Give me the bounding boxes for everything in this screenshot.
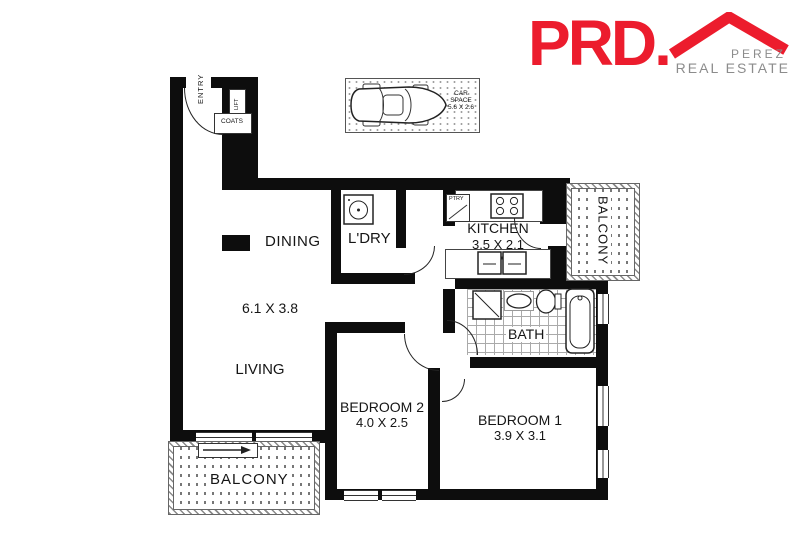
sink-icon (477, 251, 527, 275)
prd-logo-text: PRD. (528, 6, 669, 80)
lift-label: LIFT (234, 99, 240, 110)
floorplan-canvas: PRD. PEREZ REAL ESTATE CAR SPACE 5.6 X 2… (0, 0, 800, 534)
bedroom2-dimensions: 4.0 X 2.5 (332, 416, 432, 430)
washing-machine-icon (343, 194, 374, 225)
bedroom2-door-arc (404, 334, 439, 371)
wall-laundry-bottom (331, 273, 415, 284)
cooktop-icon (490, 193, 524, 219)
pantry-label: PTRY (449, 196, 464, 202)
dining-label: DINING (265, 234, 321, 251)
sliding-door-arrow-icon (199, 444, 255, 456)
living-dimensions: 6.1 X 3.8 (200, 301, 340, 316)
dining-wall-pier (222, 235, 250, 251)
bedroom1-door-arc (442, 379, 465, 402)
laundry-door-arc (404, 246, 435, 275)
bedroom1-dimensions: 3.9 X 3.1 (450, 429, 590, 443)
vanity-basin-icon (504, 291, 534, 311)
window-bedroom2-bottom-1 (344, 490, 378, 501)
balcony-bottom-label: BALCONY (208, 472, 291, 489)
wall-entry-top-right (211, 77, 258, 88)
wall-bedroom2-top (325, 322, 405, 333)
wall-bedroom-divider (428, 368, 440, 500)
bath-label: BATH (506, 327, 546, 342)
window-bedroom1-right-3 (597, 450, 609, 478)
balcony-right-area: BALCONY (566, 183, 640, 281)
car-space-area: CAR SPACE 5.6 X 2.6 (345, 78, 480, 133)
bathtub-icon (565, 288, 595, 354)
wall-laundry-right (396, 190, 406, 248)
coats-label: COATS (221, 118, 243, 125)
agency-name: PEREZ (731, 47, 786, 61)
car-icon (349, 83, 449, 127)
window-bedroom1-right-1 (597, 294, 609, 324)
entry-label: ENTRY (197, 74, 205, 104)
car-space-label: CAR SPACE 5.6 X 2.6 (446, 90, 476, 111)
shower-icon (472, 290, 502, 320)
agency-tagline: REAL ESTATE (676, 60, 790, 76)
laundry-label: L'DRY (348, 231, 391, 248)
toilet-icon (535, 288, 562, 315)
wall-laundry-left (331, 190, 341, 283)
wall-left-exterior (170, 77, 183, 437)
wall-bath-bottom (470, 357, 608, 368)
balcony-right-label: BALCONY (593, 196, 611, 268)
living-label: LIVING (200, 362, 320, 379)
bedroom2-label: BEDROOM 2 (332, 400, 432, 415)
wall-top-main (222, 178, 570, 190)
window-bedroom1-right-2 (597, 386, 609, 426)
bedroom1-label: BEDROOM 1 (450, 413, 590, 428)
sliding-door-panel (198, 443, 258, 458)
window-bedroom2-bottom-2 (382, 490, 416, 501)
wall-entry-top-left (170, 77, 186, 88)
